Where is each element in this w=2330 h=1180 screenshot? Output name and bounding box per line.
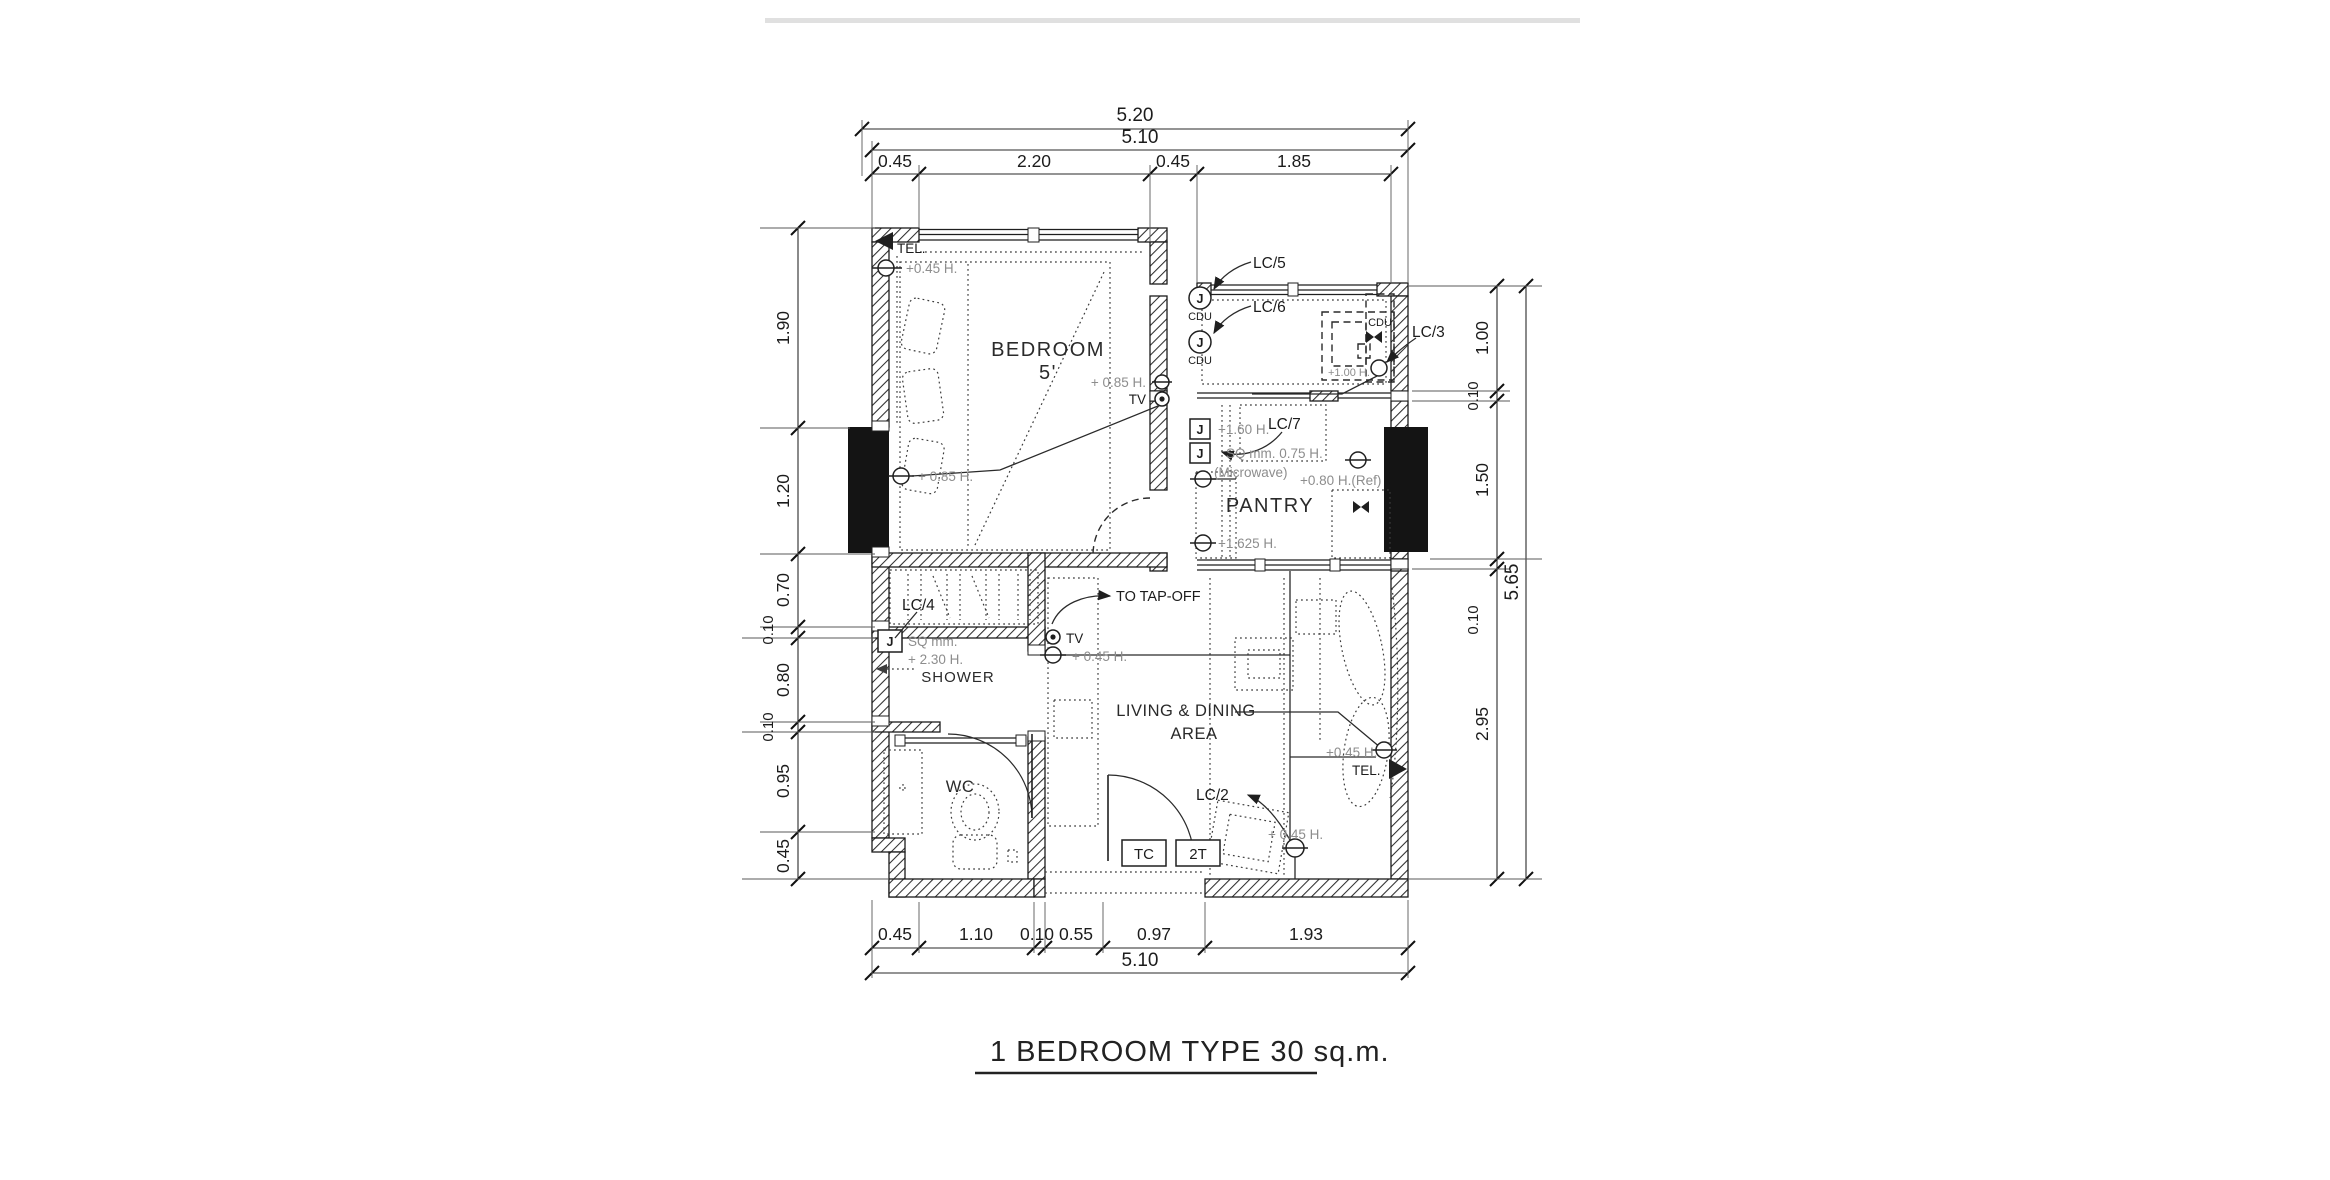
dim-bottom-seg-5: 1.93 [1289,924,1323,944]
meter-boxes: TC 2T [1122,840,1220,866]
dim-bottom-seg-0: 0.45 [878,924,912,944]
room-label-bedroom: BEDROOM [991,339,1105,361]
pantry-j2-spec: SQ mm. 0.75 H. [1226,446,1323,461]
dim-bottom-overall: 5.10 [1122,950,1159,971]
lc7-label: LC/7 [1268,416,1301,433]
dim-left-seg-1: 1.20 [773,474,793,508]
page-top-rule [765,18,1580,23]
cdu-label-top: CDU [1188,311,1212,323]
dim-top-seg-0: 0.45 [878,151,912,171]
dim-left-seg-4: 0.80 [773,663,793,697]
wc-fixtures [884,734,1032,869]
walls [848,228,1428,897]
lc5-label: LC/5 [1253,255,1286,272]
bedroom-window [919,228,1138,242]
lc2-height: + 0.45 H. [1268,827,1323,842]
j-glyph: J [887,635,894,649]
bed-tv-label: TV [1129,392,1146,407]
tel-left-label: TEL. [897,241,926,256]
dim-left-seg-2: 0.70 [773,573,793,607]
dim-left-seg-0: 1.90 [773,311,793,345]
dim-right-overall: 5.65 [1502,564,1523,601]
lc4-label: LC/4 [902,597,935,614]
cdu-label-bottom: CDU [1188,355,1212,367]
room-label-shower: SHOWER [921,669,995,686]
tap-off-label: TO TAP-OFF [1116,589,1201,605]
shaft-column-left [848,427,889,553]
2t-label: 2T [1189,846,1207,863]
tc-label: TC [1134,846,1154,863]
hall-tv-label: TV [1066,631,1083,646]
title-text: 1 BEDROOM TYPE 30 sq.m. [990,1036,1390,1068]
valve-symbol [1353,501,1369,513]
tel-right-height: +0.45 H. [1326,745,1377,760]
floor-plan-sheet: 5.20 5.10 0.45 2.20 0.45 1.85 0.45 1.10 … [0,0,2330,1180]
dim-left-seg-6: 0.95 [773,764,793,798]
drawing-title: 1 BEDROOM TYPE 30 sq.m. [975,1036,1390,1073]
room-label-bedroom-sub: 5' [1039,362,1057,384]
hall-tv-height: + 0.45 H. [1072,649,1127,664]
lc6-label: LC/6 [1253,299,1286,316]
pillow [901,437,945,494]
dim-bottom-seg-3: 0.55 [1059,924,1093,944]
room-label-pantry: PANTRY [1226,495,1314,517]
dim-top-seg-1: 2.20 [1017,151,1051,171]
shower-spec-1: SQ mm. [908,634,958,649]
j-glyph: J [1197,336,1204,350]
dim-bottom-seg-2: 0.10 [1020,924,1054,944]
bed-outline [900,262,1110,550]
pillow [900,297,946,355]
dim-top-inner: 5.10 [1122,127,1159,148]
bedroom-door-arc [1093,498,1150,555]
dim-top-seg-3: 1.85 [1277,151,1311,171]
pantry-outlet-height: +1.625 H. [1218,536,1277,551]
fridge [1332,490,1390,558]
valve-symbol [1366,331,1382,343]
lc3-label: LC/3 [1412,324,1445,341]
sofa-cushion [1330,587,1393,709]
lc2-label: LC/2 [1196,787,1229,804]
j-glyph: J [1197,423,1204,437]
outlet-symbol [1371,360,1387,376]
bed-throw-line [975,270,1105,545]
room-label-wc: WC [946,778,975,796]
pantry-counter-pass [1197,559,1391,571]
room-label-living-2: AREA [1171,725,1218,743]
dim-left-seg-7: 0.45 [773,839,793,873]
washer-height: +1.00 H. [1328,367,1370,379]
j-glyph: J [1197,292,1204,306]
dim-left-seg-3: 0.10 [760,615,777,644]
dim-bottom-seg-4: 0.97 [1137,924,1171,944]
tel-right-label: TEL. [1352,763,1381,778]
dim-top-seg-2: 0.45 [1156,151,1190,171]
wc-door-arc [948,734,1032,818]
bed-tv-height: + 0.85 H. [1091,375,1146,390]
dim-right-seg-1: 0.10 [1465,381,1482,410]
duct-zone [1048,578,1098,826]
service-window [1211,283,1391,296]
electrical-symbols [872,232,1407,857]
room-label-living-1: LIVING & DINING [1116,702,1256,720]
shower-spec-2: + 2.30 H. [908,652,963,667]
dim-left-seg-5: 0.10 [760,712,777,741]
j-glyph: J [1197,447,1204,461]
cdu-label-washer: CDU [1368,317,1392,329]
dim-right-seg-2: 1.50 [1472,463,1492,497]
microwave-label: (Microwave) [1214,465,1288,480]
pillow [902,368,945,425]
dim-right-seg-4: 2.95 [1472,707,1492,741]
fridge-outlet-height: +0.80 H.(Ref) [1300,473,1381,488]
bed-outlet-height: + 0.85 H. [918,469,973,484]
bedroom-furniture [897,252,1144,550]
vanity-counter [884,750,922,834]
dim-right-seg-0: 1.00 [1472,321,1492,355]
floor-plan-svg: 5.20 5.10 0.45 2.20 0.45 1.85 0.45 1.10 … [0,0,2330,1180]
pantry-j1-height: +1.60 H. [1218,422,1269,437]
dim-right-seg-3: 0.10 [1465,605,1482,634]
tel-left-height: +0.45 H. [906,261,957,276]
floor-drain [1008,850,1017,862]
dim-top-overall: 5.20 [1117,105,1154,126]
dim-bottom-seg-1: 1.10 [959,924,993,944]
